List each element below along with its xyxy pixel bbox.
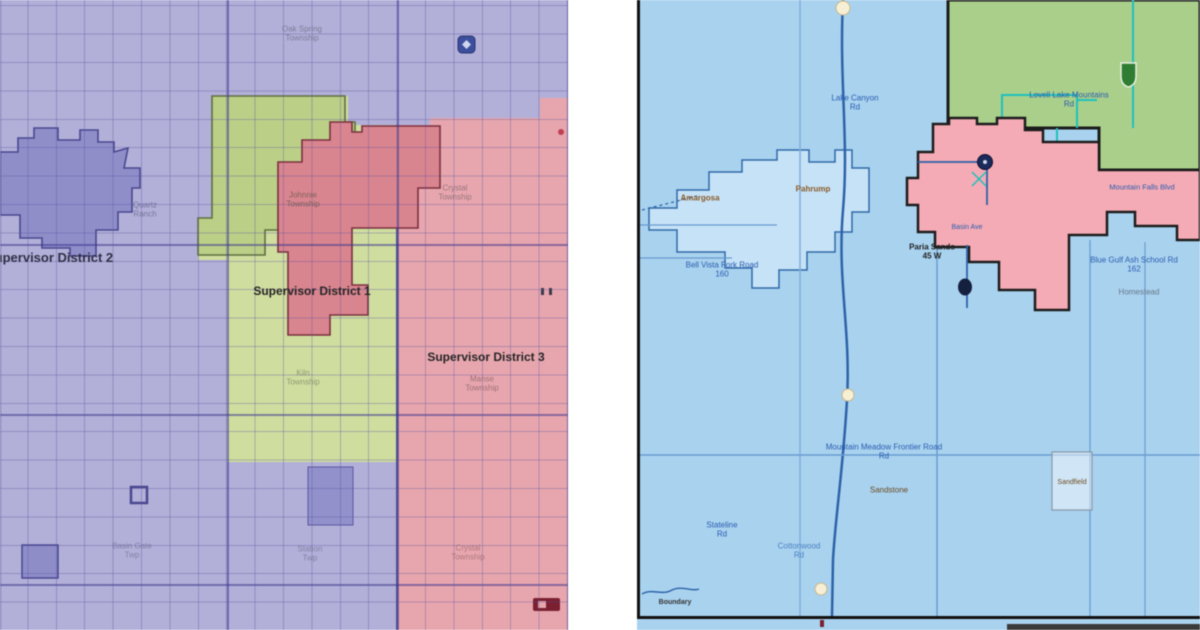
creek-squiggle — [642, 588, 699, 594]
road-label: CottonwoodRd — [778, 542, 821, 561]
district-3-label: Supervisor District 3 — [427, 350, 544, 364]
district-2-label: Supervisor District 2 — [0, 251, 113, 265]
parcel-label: Sandfield — [1057, 479, 1086, 487]
map-logo-mark — [533, 598, 560, 611]
township-label: JohnnieTownship — [286, 191, 319, 210]
road-label: Lake CanyonRd — [831, 94, 878, 113]
place-label: Homestead — [1119, 287, 1160, 296]
road-label: Bell Vista Fork Road160 — [686, 261, 759, 280]
township-label: QuartzRanch — [133, 201, 157, 220]
town-boundary-purple — [0, 128, 140, 256]
place-label: Sandstone — [870, 485, 908, 494]
footer-strip — [1007, 624, 1200, 630]
red-dot-marker — [558, 129, 564, 135]
road-label: Mountain Falls Blvd — [1109, 184, 1174, 193]
map-border-bottom — [637, 616, 1200, 619]
town-label-west: Amargosa — [680, 193, 719, 202]
tiny-mark-1 — [541, 288, 544, 295]
road-label: StatelineRd — [706, 521, 737, 540]
purple-filled-square — [22, 545, 58, 578]
highway-marker-top — [836, 1, 850, 15]
road-label: Basin Ave — [951, 224, 982, 232]
district-1-label: Supervisor District 1 — [253, 284, 370, 298]
highway-marker-bottom — [815, 583, 827, 595]
map-border-left — [637, 0, 640, 619]
township-label: CrystalTownship — [438, 184, 471, 203]
state-route-shield-green — [1121, 63, 1136, 87]
township-label: Oak SpringTownship — [282, 25, 322, 44]
city-boundary-region — [649, 150, 869, 288]
junction-label: Paria Sands45 W — [909, 243, 955, 262]
highway-marker-mid — [842, 389, 854, 401]
township-label: Basin GateTwp — [112, 542, 152, 561]
road-label: Mountain Meadow Frontier RoadRd — [826, 443, 943, 462]
regional-planning-map: Lake CanyonRd Lovell Lake MountainsRd Am… — [637, 0, 1200, 630]
footer-tick — [820, 620, 824, 627]
boundary-label: Boundary — [659, 599, 692, 607]
main-highway — [832, 0, 848, 616]
supervisor-district-map: Supervisor District 2 Supervisor Distric… — [0, 0, 568, 630]
dark-shield-marker — [958, 279, 972, 296]
township-label: KilnTownship — [286, 369, 319, 388]
marker-center-dot — [983, 160, 987, 164]
left-map-shapes — [0, 0, 568, 630]
mountain-area-label: Lovell Lake MountainsRd — [1029, 91, 1109, 110]
highway-shield-icon — [458, 36, 475, 53]
township-label: StationTwp — [298, 545, 323, 564]
two-map-screenshot: Supervisor District 2 Supervisor Distric… — [0, 0, 1200, 630]
township-label: CrystalTownship — [451, 544, 484, 563]
township-label: ManseTownship — [465, 375, 498, 394]
parcel-outline-square — [131, 487, 147, 503]
town-label-center: Pahrump — [796, 184, 831, 193]
road-label: Blue Gulf Ash School Rd162 — [1090, 256, 1178, 275]
tiny-mark-2 — [549, 288, 552, 295]
purple-parcel-rect — [308, 467, 353, 525]
